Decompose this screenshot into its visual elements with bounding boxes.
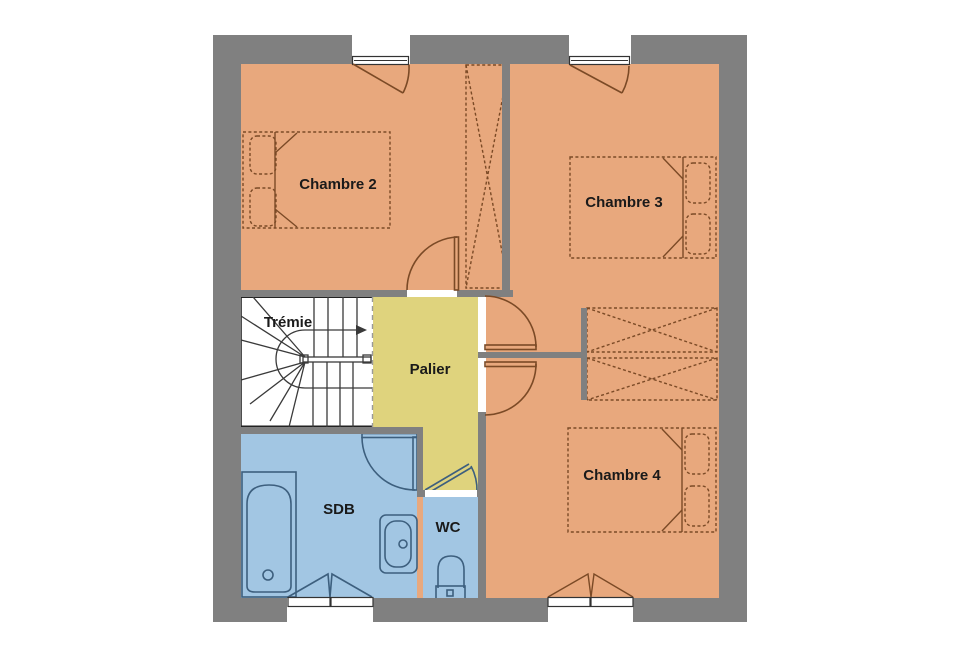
wall-exterior-top: [213, 35, 747, 64]
wall-palier-chambre4: [478, 412, 486, 598]
wall-exterior-right: [719, 35, 747, 622]
room-label-chambre4: Chambre 4: [583, 467, 661, 484]
wall-chambre2-chambre3: [502, 64, 510, 291]
room-label-palier: Palier: [410, 361, 451, 378]
wall-exterior-left: [213, 35, 241, 622]
window-frame: [288, 598, 330, 607]
wall-sdb-palier: [417, 434, 423, 497]
wall-door-stub: [478, 352, 486, 358]
wall-wc-north-left: [417, 490, 425, 497]
room-label-sdb: SDB: [323, 501, 355, 518]
room-wc-floor: [423, 497, 482, 598]
room-label-wc: WC: [436, 519, 461, 536]
wall-chambre3-chambre4: [486, 352, 587, 358]
door-gap-chambre2: [407, 290, 457, 297]
room-label-chambre3: Chambre 3: [585, 194, 663, 211]
window-frame: [548, 598, 590, 607]
floor-plan-svg: Chambre 2 Chambre 3 Chambre 4 Trémie Pal…: [0, 0, 960, 665]
door-gap-wc: [425, 490, 477, 497]
wall-sdb-north: [213, 427, 423, 434]
wall-chambre2-south-left: [241, 290, 407, 297]
room-label-tremie: Trémie: [264, 314, 312, 331]
window-frame: [591, 598, 633, 607]
floor-plan: Chambre 2 Chambre 3 Chambre 4 Trémie Pal…: [0, 0, 960, 665]
window-frame: [331, 598, 373, 607]
door-gap-chambre3: [478, 297, 486, 352]
room-label-chambre2: Chambre 2: [299, 176, 377, 193]
wall-closet-stub: [581, 308, 587, 400]
